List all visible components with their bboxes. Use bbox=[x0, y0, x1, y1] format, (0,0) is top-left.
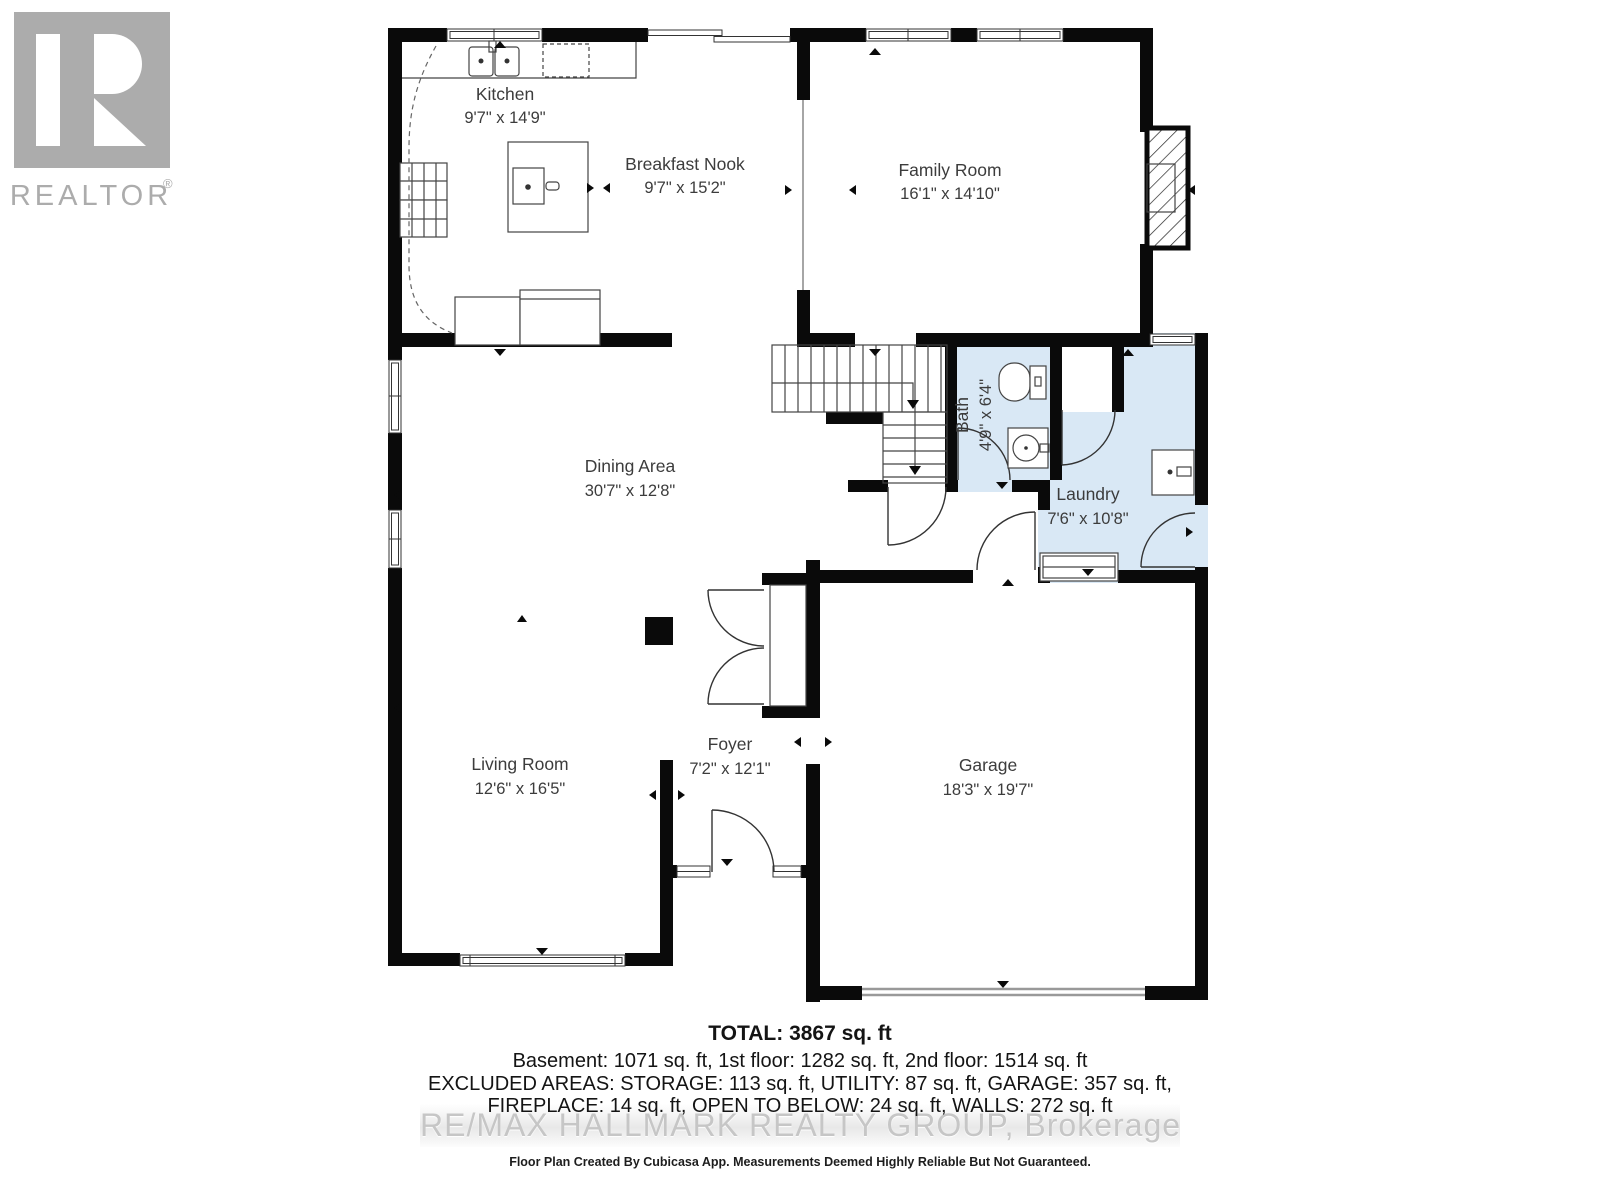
dishwasher bbox=[543, 44, 589, 77]
family-room-window-1 bbox=[866, 29, 951, 41]
room-dims-family-room: 16'1" x 14'10" bbox=[900, 185, 1000, 203]
kitchen-window bbox=[447, 29, 542, 41]
realtor-logo-text: REALTOR bbox=[10, 180, 172, 212]
room-label-family-room: Family Room bbox=[898, 160, 1001, 180]
hall-closet-sliding-doors bbox=[1040, 553, 1118, 581]
room-dims-laundry: 7'6" x 10'8" bbox=[1047, 510, 1128, 528]
floor-plan: REALTOR ® bbox=[0, 0, 1600, 1200]
kitchen-sink bbox=[469, 41, 519, 76]
front-door bbox=[712, 810, 774, 872]
floor-areas: Basement: 1071 sq. ft, 1st floor: 1282 s… bbox=[0, 1050, 1600, 1073]
room-dims-living-room: 12'6" x 16'5" bbox=[475, 780, 566, 798]
room-label-garage: Garage bbox=[959, 755, 1017, 775]
room-dims-bath: 4'9" x 6'4" bbox=[977, 379, 995, 451]
area-summary: TOTAL: 3867 sq. ft Basement: 1071 sq. ft… bbox=[0, 1022, 1600, 1118]
living-room-window bbox=[460, 955, 625, 966]
dining-window-2 bbox=[389, 510, 401, 568]
laundry-window bbox=[1150, 334, 1195, 345]
lower-cabinets bbox=[455, 290, 600, 345]
room-dims-dining-area: 30'7" x 12'8" bbox=[585, 482, 676, 500]
garage-entry-door bbox=[977, 512, 1035, 570]
garage-door bbox=[862, 989, 1145, 995]
dining-window-1 bbox=[389, 360, 401, 433]
floor-plan-page: REALTOR ® bbox=[0, 0, 1600, 1200]
room-label-foyer: Foyer bbox=[708, 734, 753, 754]
bath-sink bbox=[1008, 428, 1049, 468]
basement-stairs-door bbox=[888, 487, 946, 545]
family-room-window-2 bbox=[977, 29, 1063, 41]
washer bbox=[1152, 450, 1194, 495]
front-door-sidelight-right bbox=[773, 866, 801, 877]
laundry-closet-floor bbox=[1062, 347, 1112, 412]
room-label-kitchen: Kitchen bbox=[476, 84, 534, 104]
dining-post bbox=[645, 617, 673, 645]
fireplace bbox=[1147, 128, 1188, 248]
excluded-areas-2: FIREPLACE: 14 sq. ft, OPEN TO BELOW: 24 … bbox=[0, 1095, 1600, 1118]
registered-mark: ® bbox=[163, 176, 173, 191]
total-area: TOTAL: 3867 sq. ft bbox=[0, 1022, 1600, 1046]
kitchen-island bbox=[508, 142, 588, 232]
realtor-logo: REALTOR ® bbox=[10, 12, 173, 212]
room-label-living-room: Living Room bbox=[471, 754, 568, 774]
foyer-closet-doors bbox=[708, 585, 806, 706]
toilet bbox=[999, 363, 1046, 401]
range bbox=[400, 163, 447, 237]
room-label-laundry: Laundry bbox=[1056, 484, 1119, 504]
front-door-sidelight-left bbox=[677, 866, 710, 877]
room-dims-garage: 18'3" x 19'7" bbox=[943, 781, 1034, 799]
room-label-breakfast-nook: Breakfast Nook bbox=[625, 154, 745, 174]
patio-sliding-door bbox=[648, 30, 790, 42]
room-dims-foyer: 7'2" x 12'1" bbox=[689, 760, 770, 778]
excluded-areas-1: EXCLUDED AREAS: STORAGE: 113 sq. ft, UTI… bbox=[0, 1073, 1600, 1096]
disclaimer: Floor Plan Created By Cubicasa App. Meas… bbox=[0, 1155, 1600, 1169]
room-dims-kitchen: 9'7" x 14'9" bbox=[464, 109, 545, 127]
room-label-bath: Bath bbox=[952, 397, 972, 433]
room-dims-breakfast-nook: 9'7" x 15'2" bbox=[644, 179, 725, 197]
room-label-dining-area: Dining Area bbox=[585, 456, 676, 476]
